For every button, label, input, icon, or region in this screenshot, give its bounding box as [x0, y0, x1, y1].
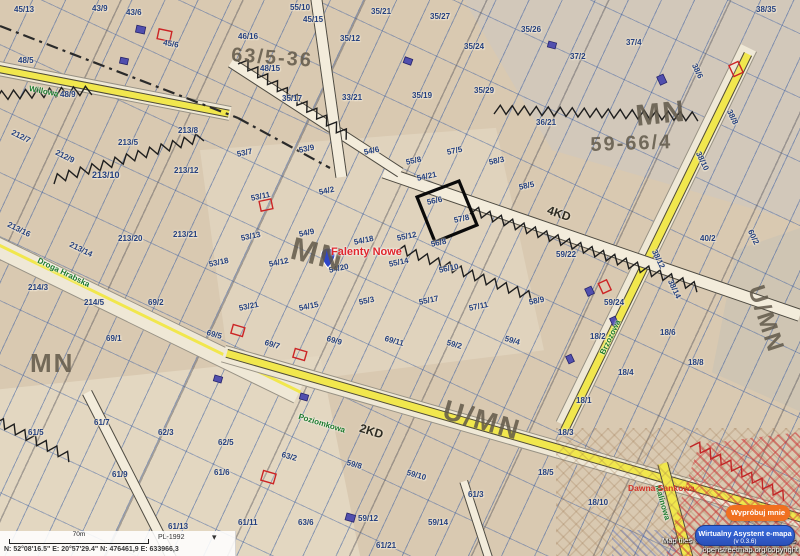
parcel-number-label: 213/20	[118, 234, 142, 243]
emapa-window: 45/1343/943/645/646/1655/1045/1535/1235/…	[0, 0, 800, 556]
parcel-number-label: 48/9	[60, 90, 76, 99]
assistant-title: Wirtualny Asystent e-mapa	[696, 529, 794, 538]
parcel-number-label: 33/21	[342, 93, 362, 102]
parcel-number-label: 213/16	[6, 220, 32, 239]
road-plan-label: 4KD	[545, 203, 572, 224]
parcel-number-label: 69/1	[106, 334, 122, 343]
parcel-number-label: 35/27	[430, 12, 450, 21]
parcel-number-label: 59/10	[406, 468, 428, 482]
parcel-number-label: 213/14	[68, 240, 94, 259]
scale-distance-label: 70m	[9, 531, 149, 538]
assistant-version: (v 0.3.6)	[696, 538, 794, 545]
parcel-number-label: 212/9	[54, 148, 76, 165]
parcel-number-label: 48/15	[260, 64, 280, 73]
crs-selector[interactable]: PL-1992	[158, 534, 184, 541]
parcel-number-label: 35/29	[474, 86, 494, 95]
place-name-label: Falenty Nowe	[331, 246, 402, 258]
scale-bracket	[9, 539, 149, 544]
parcel-number-label: 58/5	[518, 180, 535, 192]
parcel-number-label: 35/12	[340, 34, 360, 43]
parcel-number-label: 46/16	[238, 32, 258, 41]
road-yellow-topleft	[0, 64, 230, 118]
assistant-try-me-bubble[interactable]: Wypróbuj mnie	[726, 505, 790, 521]
parcel-number-label: 45/6	[162, 38, 179, 50]
parcel-number-label: 18/5	[538, 468, 554, 477]
parcel-number-label: 59/22	[556, 250, 576, 259]
parcel-number-label: 69/2	[148, 298, 164, 307]
parcel-number-label: 48/5	[18, 56, 34, 65]
status-bar: 70m PL-1992 ▾ N: 52°08'16.5" E: 20°57'29…	[0, 531, 236, 556]
attribution-line2[interactable]: openstreetmap.org/copyright	[438, 545, 798, 554]
parcel-number-label: 213/8	[178, 126, 198, 135]
parcel-number-label: 214/3	[28, 283, 48, 292]
zone-label: MN	[30, 348, 74, 379]
parcel-number-label: 18/10	[588, 498, 608, 507]
parcel-number-label: 213/21	[173, 230, 197, 239]
assistant-launcher-button[interactable]: Wirtualny Asystent e-mapa (v 0.3.6)	[695, 525, 795, 546]
parcel-number-label: 35/24	[464, 42, 484, 51]
parcel-number-label: 43/6	[126, 8, 142, 17]
chevron-down-icon[interactable]: ▾	[212, 532, 217, 543]
parcel-number-label: 212/7	[10, 128, 32, 145]
scale-bar: 70m	[9, 533, 149, 544]
parcel-number-label: 40/2	[700, 234, 716, 243]
parcel-number-label: 18/4	[618, 368, 634, 377]
parcel-number-label: 45/13	[14, 5, 34, 14]
parcel-number-label: 61/21	[376, 541, 396, 550]
parcel-number-label: 213/5	[118, 138, 138, 147]
cursor-coordinates: N: 52°08'16.5" E: 20°57'29.4" N: 476461,…	[4, 546, 179, 553]
parcel-number-label: 43/9	[92, 4, 108, 13]
parcel-number-label: 59/12	[358, 514, 378, 523]
parcel-number-label: 59/8	[346, 458, 363, 471]
road-plan-label: 2KD	[358, 421, 385, 441]
parcel-number-label: 18/8	[688, 358, 704, 367]
map-canvas[interactable]: 45/1343/943/645/646/1655/1045/1535/1235/…	[0, 0, 800, 556]
parcel-number-label: 213/12	[174, 166, 198, 175]
parcel-number-label: 35/19	[412, 91, 432, 100]
parcel-number-label: 35/21	[371, 7, 391, 16]
parcel-number-label: 18/6	[660, 328, 676, 337]
parcel-number-label: 55/10	[290, 3, 310, 12]
parcel-number-label: 213/10	[92, 170, 120, 180]
parcel-number-label: 59/14	[428, 518, 448, 527]
